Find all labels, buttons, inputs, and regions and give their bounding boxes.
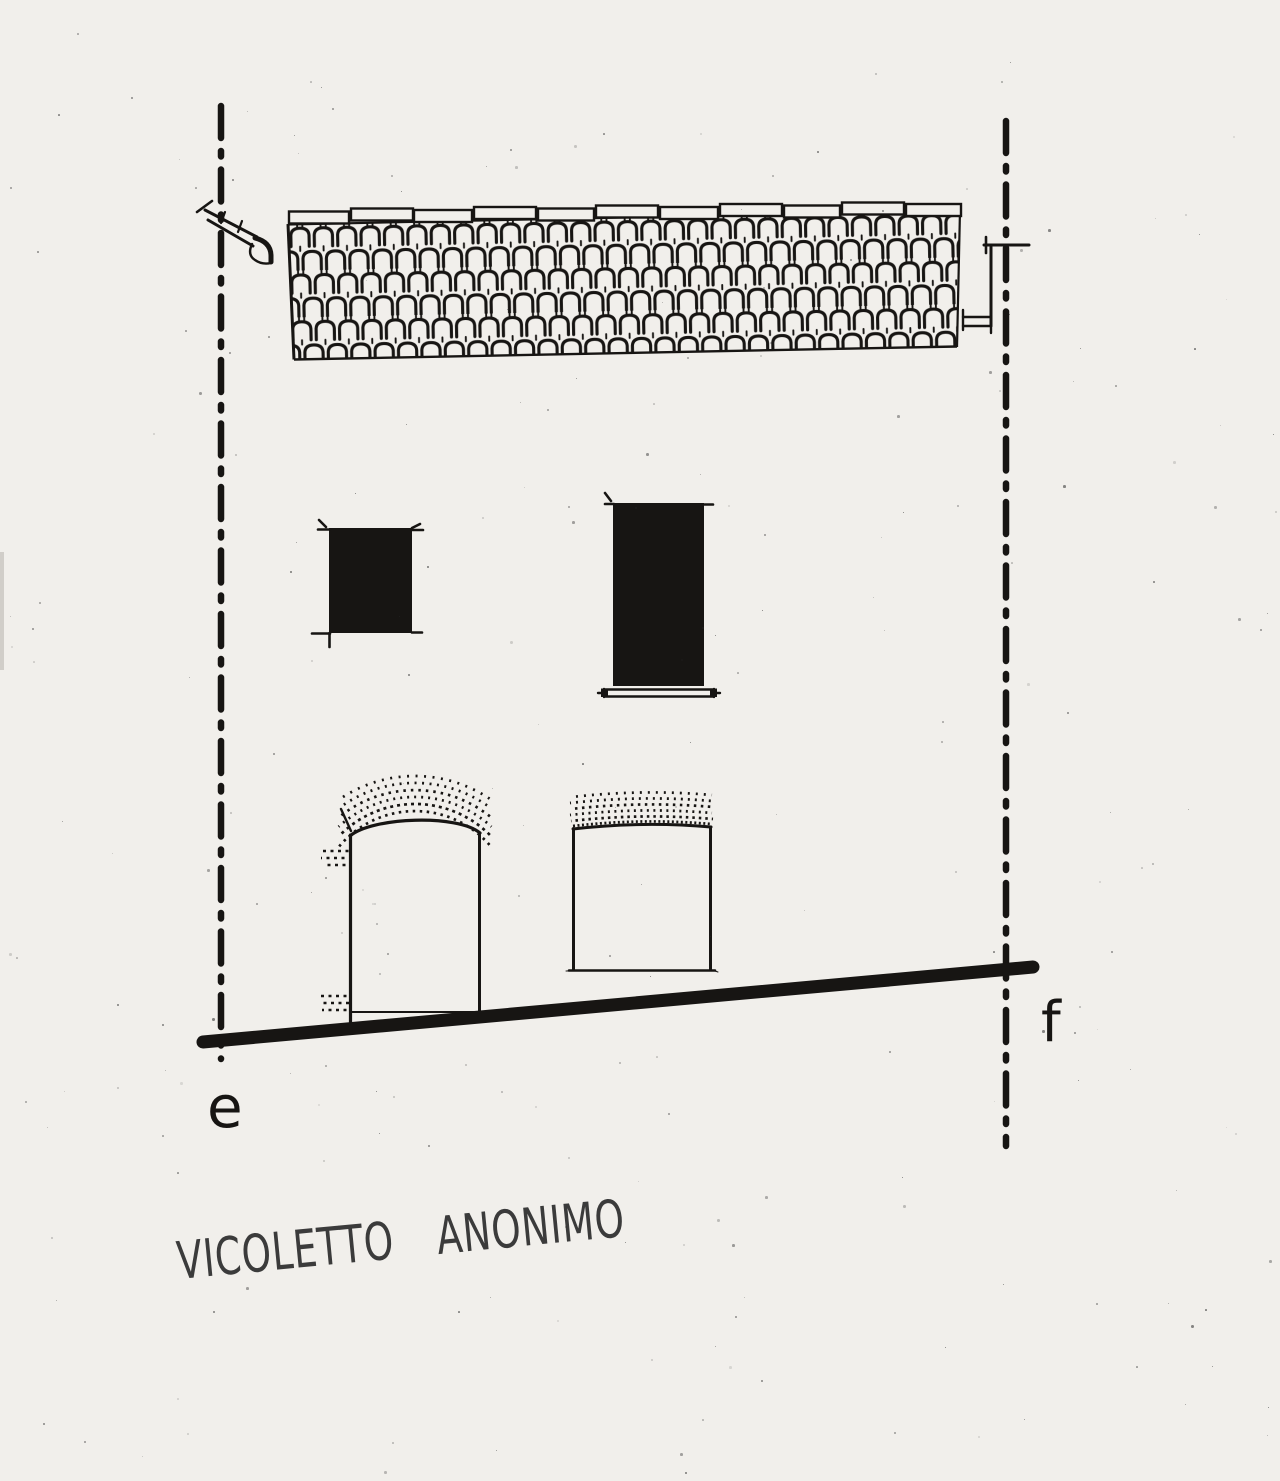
scanned-elevation-sheet: e f VICOLETTO ANONIMO bbox=[0, 0, 1280, 1481]
window-large-sill bbox=[598, 689, 720, 698]
roof bbox=[197, 200, 1029, 370]
ground-line bbox=[203, 967, 1033, 1042]
section-marker-e: e bbox=[207, 1073, 243, 1141]
roof-tiles bbox=[280, 200, 970, 370]
arch-voussoirs-left bbox=[339, 776, 492, 846]
window-large-ticks bbox=[605, 493, 713, 505]
section-marker-f: f bbox=[1041, 990, 1062, 1055]
doorway-square bbox=[566, 792, 718, 972]
arch-voussoirs-right bbox=[570, 792, 713, 826]
gutter-right bbox=[963, 237, 1029, 333]
masonry-stipple-left-jamb bbox=[319, 851, 349, 1010]
downspout-left bbox=[197, 201, 271, 264]
doorway-arched bbox=[319, 776, 491, 1031]
window-large bbox=[598, 493, 720, 697]
window-small bbox=[312, 520, 423, 647]
